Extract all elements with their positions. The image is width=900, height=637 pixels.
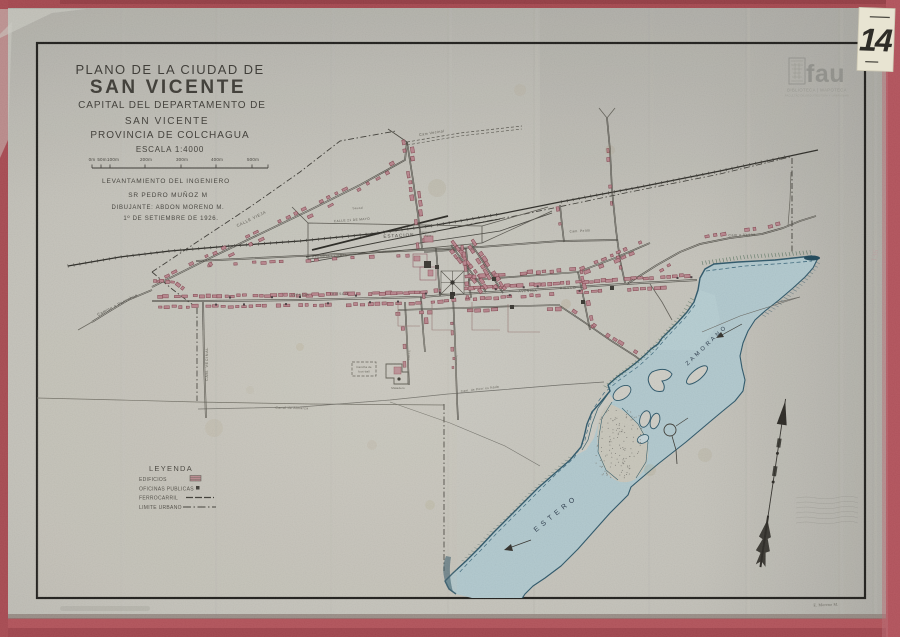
svg-text:14: 14 <box>859 21 894 58</box>
